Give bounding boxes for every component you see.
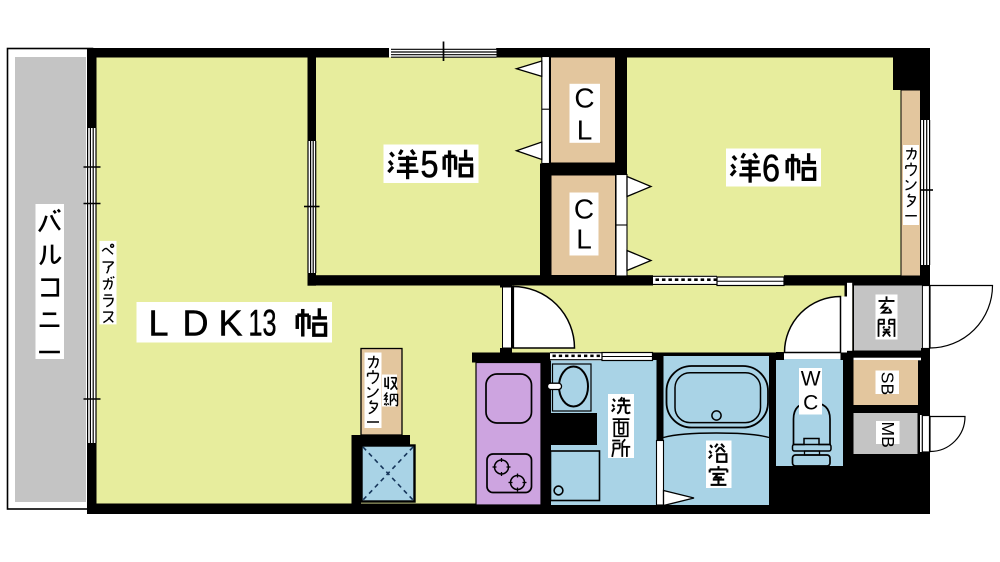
svg-text:C: C: [574, 83, 594, 114]
svg-text:K: K: [219, 303, 243, 344]
svg-text:L: L: [149, 303, 169, 344]
svg-text:W: W: [801, 368, 821, 391]
svg-text:6: 6: [762, 148, 780, 190]
svg-text:L: L: [577, 115, 593, 146]
svg-text:C: C: [803, 392, 818, 415]
svg-text:13: 13: [249, 303, 277, 344]
svg-text:MB: MB: [878, 422, 898, 448]
svg-text:SB: SB: [878, 372, 898, 395]
svg-text:5: 5: [421, 144, 439, 186]
svg-text:L: L: [576, 224, 592, 255]
svg-text:D: D: [183, 303, 209, 344]
svg-text:C: C: [574, 194, 594, 225]
